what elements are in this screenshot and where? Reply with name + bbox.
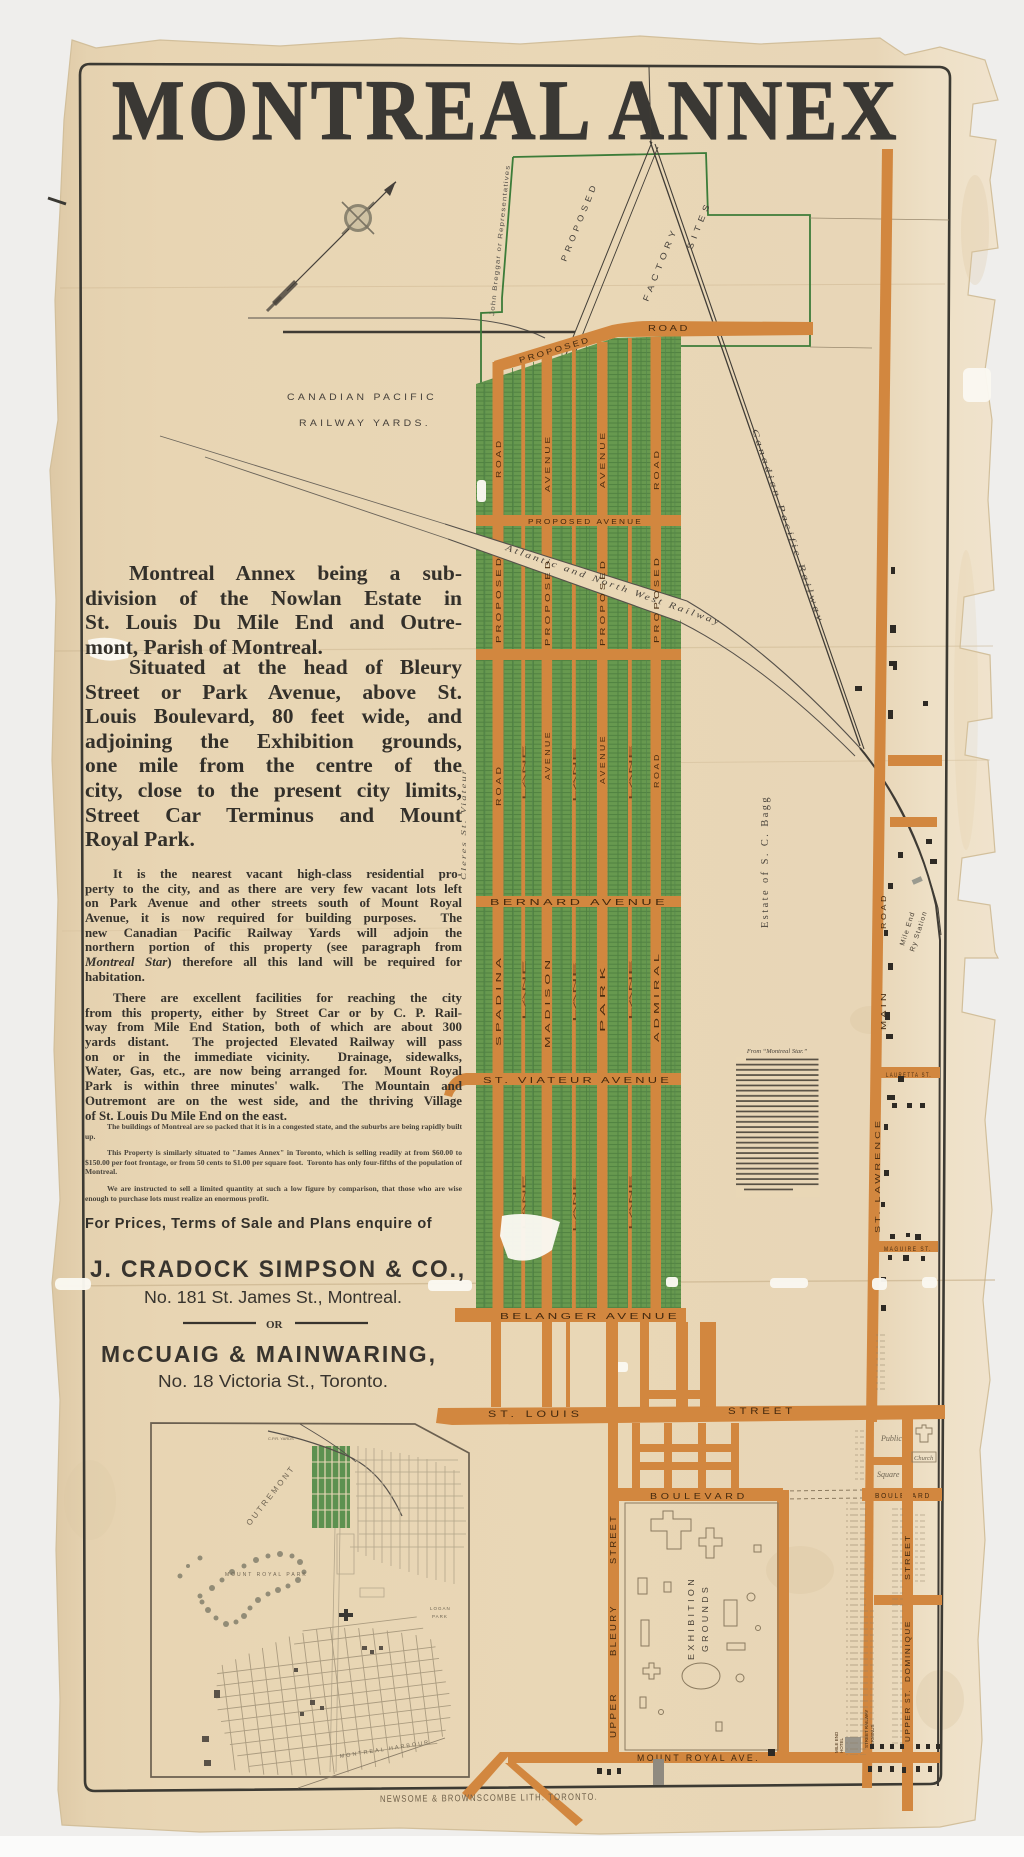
svg-text:J. CRADOCK SIMPSON & CO.,: J. CRADOCK SIMPSON & CO., — [90, 1256, 466, 1283]
svg-text:No. 18 Victoria St., Toronto.: No. 18 Victoria St., Toronto. — [158, 1371, 388, 1391]
svg-text:No. 181 St. James St., Montrea: No. 181 St. James St., Montreal. — [144, 1287, 402, 1307]
svg-text:McCUAIG & MAINWARING,: McCUAIG & MAINWARING, — [101, 1341, 437, 1367]
svg-text:OR: OR — [266, 1319, 284, 1331]
